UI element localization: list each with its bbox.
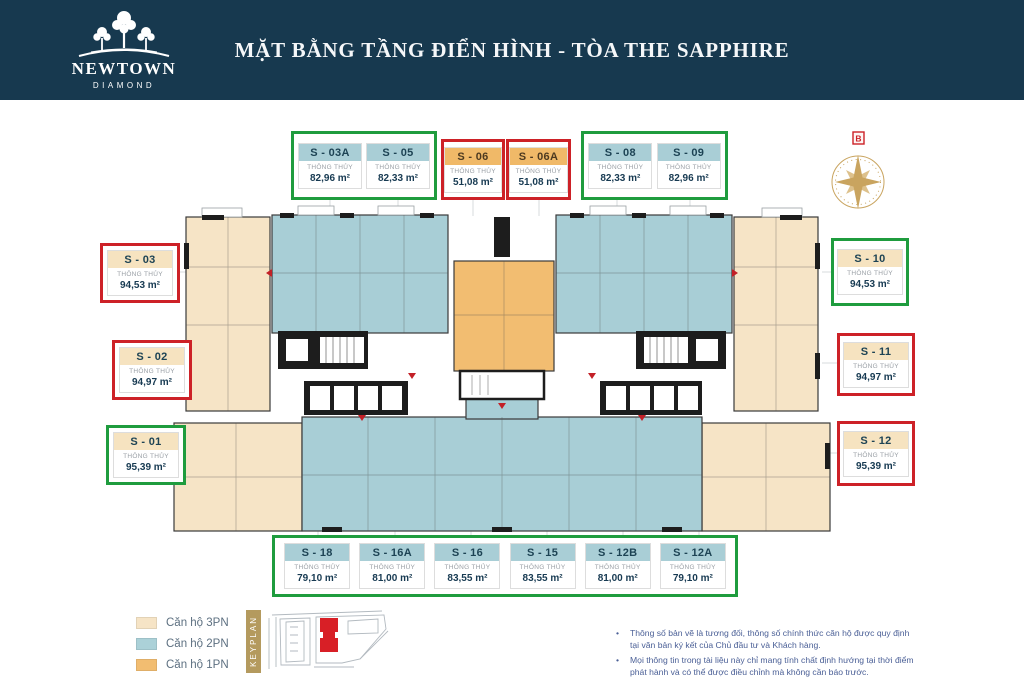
unit-group-bottom: S - 18 THÔNG THỦY 79,10 m² S - 16A THÔNG… (272, 535, 738, 597)
unit-chip-s16: S - 16 THÔNG THỦY 83,55 m² (434, 543, 500, 589)
unit-chip-s11: S - 11 THÔNG THỦY 94,97 m² (843, 342, 909, 388)
disclaimer-notes: Thông số bản vẽ là tương đối, thông số c… (614, 627, 920, 681)
floor-plan (172, 203, 832, 533)
unit-spec-label: THÔNG THỦY (511, 564, 575, 571)
unit-spec-label: THÔNG THỦY (108, 271, 172, 278)
unit-id: S - 11 (844, 343, 908, 360)
unit-area: 95,39 m² (844, 461, 908, 472)
unit-chip-s05: S - 05 THÔNG THỦY 82,33 m² (366, 143, 430, 189)
legend-label-1pn: Căn hộ 1PN (166, 659, 229, 671)
unit-id: S - 01 (114, 433, 178, 450)
unit-spec-label: THÔNG THỦY (285, 564, 349, 571)
unit-chip-s10: S - 10 THÔNG THỦY 94,53 m² (837, 249, 903, 295)
keyplan-title-bar: KEYPLAN (246, 610, 261, 673)
legend-item-2pn: Căn hộ 2PN (136, 633, 229, 654)
unit-area: 79,10 m² (661, 573, 725, 584)
unit-area: 51,08 m² (510, 177, 567, 188)
unit-spec-label: THÔNG THỦY (661, 564, 725, 571)
unit-id: S - 03 (108, 251, 172, 268)
unit-spec-label: THÔNG THỦY (445, 168, 501, 175)
unit-spec-label: THÔNG THỦY (586, 564, 650, 571)
unit-id: S - 02 (120, 348, 184, 365)
unit-id: S - 09 (658, 144, 720, 161)
unit-chip-s15: S - 15 THÔNG THỦY 83,55 m² (510, 543, 576, 589)
unit-chip-s03: S - 03 THÔNG THỦY 94,53 m² (107, 250, 173, 296)
page-title: MẶT BẰNG TẦNG ĐIỂN HÌNH - TÒA THE SAPPHI… (0, 0, 1024, 100)
legend-swatch-3pn (136, 617, 157, 629)
legend-label-3pn: Căn hộ 3PN (166, 617, 229, 629)
floorplan-page: NEWTOWN DIAMOND MẶT BẰNG TẦNG ĐIỂN HÌNH … (0, 0, 1024, 693)
legend: Căn hộ 3PN Căn hộ 2PN Căn hộ 1PN (136, 612, 229, 675)
unit-spec-label: THÔNG THỦY (114, 453, 178, 460)
unit-group-left-2: S - 02 THÔNG THỦY 94,97 m² (112, 340, 192, 400)
elevator-bank-left (304, 381, 408, 415)
unit-id: S - 16A (360, 544, 424, 561)
unit-area: 94,53 m² (838, 279, 902, 290)
unit-id: S - 12 (844, 432, 908, 449)
unit-spec-label: THÔNG THỦY (658, 164, 720, 171)
unit-id: S - 18 (285, 544, 349, 561)
elevator-bank-right (600, 381, 702, 415)
unit-id: S - 05 (367, 144, 429, 161)
keyplan-label: KEYPLAN (249, 616, 258, 667)
unit-chip-s01: S - 01 THÔNG THỦY 95,39 m² (113, 432, 179, 478)
unit-spec-label: THÔNG THỦY (120, 368, 184, 375)
core-left (278, 331, 368, 369)
central-lobby (460, 371, 544, 399)
unit-id: S - 12B (586, 544, 650, 561)
unit-area: 95,39 m² (114, 462, 178, 473)
core-right (636, 331, 726, 369)
unit-group-top-4: S - 08 THÔNG THỦY 82,33 m² S - 09 THÔNG … (581, 131, 728, 200)
keyplan-map (264, 607, 392, 675)
unit-group-top-2: S - 06 THÔNG THỦY 51,08 m² (441, 139, 505, 200)
legend-label-2pn: Căn hộ 2PN (166, 638, 229, 650)
unit-group-left-1: S - 03 THÔNG THỦY 94,53 m² (100, 243, 180, 303)
unit-area: 82,33 m² (589, 173, 651, 184)
unit-id: S - 03A (299, 144, 361, 161)
unit-id: S - 15 (511, 544, 575, 561)
compass-icon: B (820, 130, 896, 214)
compass-north-label: B (855, 134, 861, 144)
unit-chip-s18: S - 18 THÔNG THỦY 79,10 m² (284, 543, 350, 589)
unit-area: 82,96 m² (658, 173, 720, 184)
unit-chip-s16a: S - 16A THÔNG THỦY 81,00 m² (359, 543, 425, 589)
unit-group-top-1: S - 03A THÔNG THỦY 82,96 m² S - 05 THÔNG… (291, 131, 437, 200)
unit-group-top-3: S - 06A THÔNG THỦY 51,08 m² (506, 139, 571, 200)
unit-spec-label: THÔNG THỦY (838, 270, 902, 277)
unit-spec-label: THÔNG THỦY (844, 452, 908, 459)
unit-spec-label: THÔNG THỦY (435, 564, 499, 571)
unit-area: 51,08 m² (445, 177, 501, 188)
unit-area: 94,97 m² (844, 372, 908, 383)
unit-spec-label: THÔNG THỦY (367, 164, 429, 171)
unit-id: S - 08 (589, 144, 651, 161)
unit-group-right-2: S - 11 THÔNG THỦY 94,97 m² (837, 333, 915, 396)
unit-area: 79,10 m² (285, 573, 349, 584)
unit-group-left-3: S - 01 THÔNG THỦY 95,39 m² (106, 425, 186, 485)
unit-group-right-3: S - 12 THÔNG THỦY 95,39 m² (837, 421, 915, 486)
unit-area: 81,00 m² (360, 573, 424, 584)
legend-item-1pn: Căn hộ 1PN (136, 654, 229, 675)
unit-area: 83,55 m² (511, 573, 575, 584)
keyplan-highlight-building (320, 618, 338, 652)
unit-id: S - 06 (445, 148, 501, 165)
unit-area: 94,53 m² (108, 280, 172, 291)
unit-spec-label: THÔNG THỦY (510, 168, 567, 175)
unit-group-right-1: S - 10 THÔNG THỦY 94,53 m² (831, 238, 909, 306)
unit-id: S - 10 (838, 250, 902, 267)
unit-chip-s02: S - 02 THÔNG THỦY 94,97 m² (119, 347, 185, 393)
unit-area: 82,96 m² (299, 173, 361, 184)
unit-chip-s12b: S - 12B THÔNG THỦY 81,00 m² (585, 543, 651, 589)
unit-chip-s03a: S - 03A THÔNG THỦY 82,96 m² (298, 143, 362, 189)
header-bar: NEWTOWN DIAMOND MẶT BẰNG TẦNG ĐIỂN HÌNH … (0, 0, 1024, 100)
legend-item-3pn: Căn hộ 3PN (136, 612, 229, 633)
unit-chip-s09: S - 09 THÔNG THỦY 82,96 m² (657, 143, 721, 189)
unit-spec-label: THÔNG THỦY (589, 164, 651, 171)
unit-chip-s12a: S - 12A THÔNG THỦY 79,10 m² (660, 543, 726, 589)
unit-spec-label: THÔNG THỦY (299, 164, 361, 171)
unit-id: S - 06A (510, 148, 567, 165)
legend-swatch-2pn (136, 638, 157, 650)
unit-area: 82,33 m² (367, 173, 429, 184)
legend-swatch-1pn (136, 659, 157, 671)
note-item-1: Thông số bản vẽ là tương đối, thông số c… (614, 627, 920, 651)
unit-chip-s06a: S - 06A THÔNG THỦY 51,08 m² (509, 147, 568, 193)
unit-spec-label: THÔNG THỦY (844, 363, 908, 370)
unit-id: S - 12A (661, 544, 725, 561)
note-item-2: Mọi thông tin trong tài liệu này chỉ man… (614, 654, 920, 678)
unit-chip-s12: S - 12 THÔNG THỦY 95,39 m² (843, 431, 909, 477)
unit-chip-s08: S - 08 THÔNG THỦY 82,33 m² (588, 143, 652, 189)
unit-spec-label: THÔNG THỦY (360, 564, 424, 571)
unit-area: 81,00 m² (586, 573, 650, 584)
unit-chip-s06: S - 06 THÔNG THỦY 51,08 m² (444, 147, 502, 193)
unit-area: 83,55 m² (435, 573, 499, 584)
unit-area: 94,97 m² (120, 377, 184, 388)
unit-id: S - 16 (435, 544, 499, 561)
